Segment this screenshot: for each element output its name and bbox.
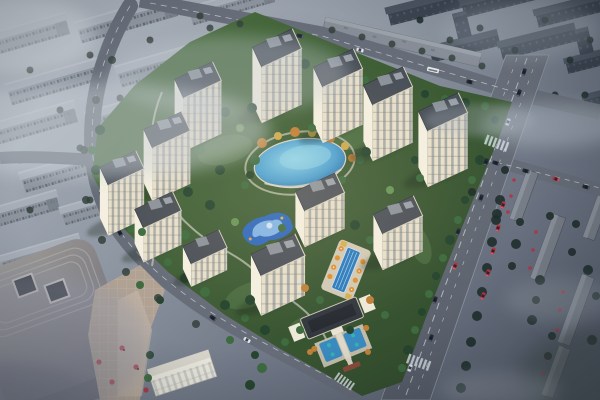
aerial-rendering: Residential complex aerial masterplan re… bbox=[0, 0, 600, 400]
screenshot-root: Residential complex aerial masterplan re… bbox=[0, 0, 600, 400]
vignette bbox=[0, 0, 600, 400]
